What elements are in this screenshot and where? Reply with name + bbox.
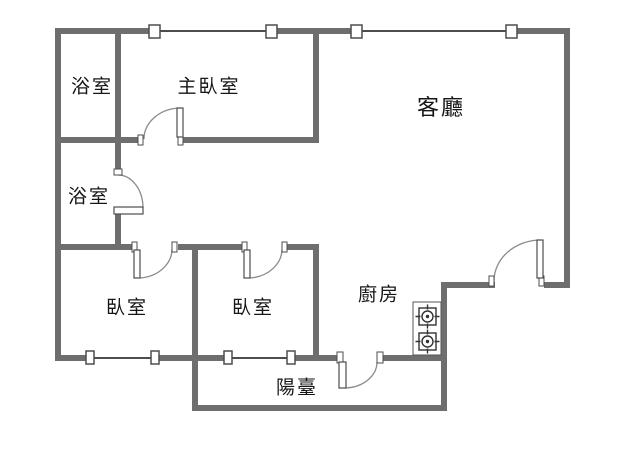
door-bathroom-2	[114, 169, 143, 214]
window-icon	[266, 25, 277, 38]
room-label-bedroom-2: 臥室	[232, 293, 274, 320]
window-icon	[506, 25, 517, 38]
window-icon	[351, 25, 362, 38]
window-icon	[224, 351, 232, 364]
room-label-master-bedroom: 主臥室	[177, 72, 240, 99]
door-bedroom-2	[242, 242, 287, 278]
room-label-living-room: 客廳	[417, 90, 465, 122]
stove-icon	[413, 302, 441, 355]
door-bedroom-1	[132, 242, 177, 278]
room-label-bedroom-1: 臥室	[106, 293, 148, 320]
window-icon	[287, 351, 295, 364]
window-icon	[149, 25, 160, 38]
room-label-kitchen: 廚房	[358, 280, 400, 307]
symbols-overlay	[0, 0, 638, 460]
door-master-bedroom	[138, 108, 183, 145]
room-label-balcony: 陽臺	[276, 373, 318, 400]
window-icon	[86, 351, 94, 364]
floorplan-canvas: 浴室 主臥室 客廳 浴室 臥室 臥室 廚房 陽臺	[0, 0, 638, 460]
window-icon	[151, 351, 159, 364]
door-entry	[489, 240, 544, 286]
room-label-bathroom-2: 浴室	[68, 182, 110, 209]
room-label-bathroom-1: 浴室	[71, 72, 113, 99]
door-balcony	[337, 352, 383, 388]
